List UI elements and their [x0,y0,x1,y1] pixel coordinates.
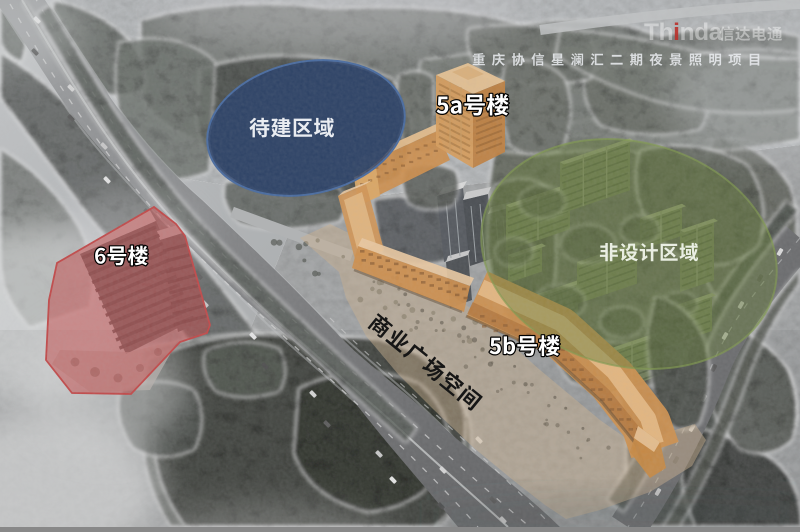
svg-text:Thinda: Thinda [644,19,723,46]
